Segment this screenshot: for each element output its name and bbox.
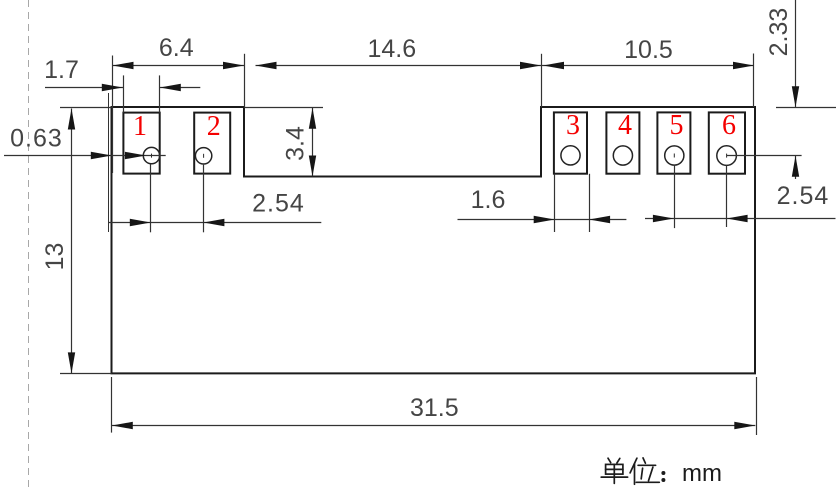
svg-text:14.6: 14.6 — [367, 35, 416, 63]
svg-text:mm: mm — [682, 460, 722, 487]
svg-text:6.4: 6.4 — [159, 34, 194, 62]
svg-text:2.33: 2.33 — [765, 8, 793, 57]
svg-text:4: 4 — [618, 110, 632, 141]
svg-text:3.4: 3.4 — [282, 126, 310, 161]
svg-text:10.5: 10.5 — [624, 36, 673, 64]
svg-text:1.7: 1.7 — [44, 56, 79, 84]
svg-text:5: 5 — [670, 110, 684, 141]
svg-text:6: 6 — [722, 110, 736, 141]
svg-text:1: 1 — [133, 111, 147, 142]
svg-text:3: 3 — [566, 110, 580, 141]
svg-text:31.5: 31.5 — [410, 394, 459, 422]
svg-text:2.54: 2.54 — [777, 182, 830, 210]
svg-text:0.63: 0.63 — [10, 125, 63, 153]
svg-text:1.6: 1.6 — [471, 186, 506, 214]
svg-text:13: 13 — [41, 243, 69, 271]
svg-text:2: 2 — [207, 111, 221, 142]
svg-text:2.54: 2.54 — [252, 190, 305, 218]
